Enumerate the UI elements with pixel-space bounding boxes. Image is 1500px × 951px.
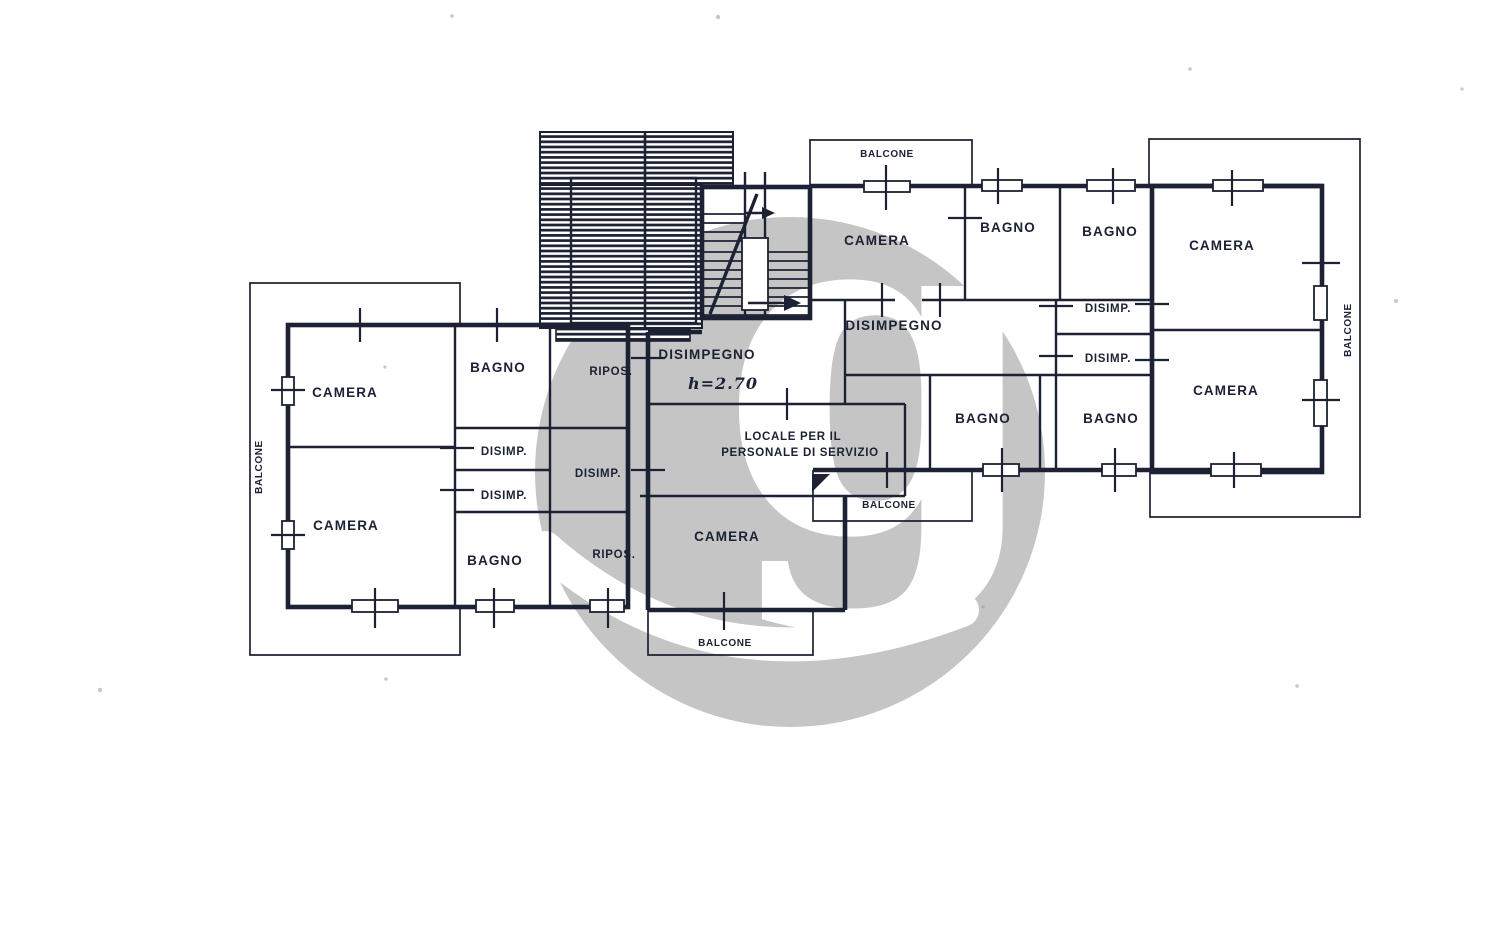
room-label-bagno-left-top: BAGNO bbox=[470, 360, 526, 375]
room-label-locale-line2: PERSONALE DI SERVIZIO bbox=[721, 447, 879, 459]
room-label-disimp-left-upper: DISIMP. bbox=[481, 446, 527, 458]
room-label-bagno-top-1: BAGNO bbox=[980, 220, 1036, 235]
room-label-bagno-left-bottom: BAGNO bbox=[467, 553, 523, 568]
room-label-camera-center-bottom: CAMERA bbox=[694, 529, 760, 544]
room-label-bagno-right-2: BAGNO bbox=[1083, 411, 1139, 426]
room-label-camera-left-top: CAMERA bbox=[312, 385, 378, 400]
room-label-camera-right-top: CAMERA bbox=[1189, 238, 1255, 253]
room-label-ripos-bottom: RIPOS. bbox=[592, 549, 635, 561]
label-balcone-center: BALCONE bbox=[862, 500, 916, 511]
room-label-disimpegno-center: DISIMPEGNO bbox=[658, 347, 755, 362]
stair-landing bbox=[742, 238, 768, 310]
room-label-disimp-right-upper: DISIMP. bbox=[1085, 303, 1131, 315]
label-balcone-left: BALCONE bbox=[254, 440, 265, 494]
balcony-right-rail bbox=[1149, 139, 1360, 517]
room-label-camera-left-bottom: CAMERA bbox=[313, 518, 379, 533]
label-balcone-bottom: BALCONE bbox=[698, 638, 752, 649]
room-label-disimp-left-lower: DISIMP. bbox=[481, 490, 527, 502]
label-balcone-top: BALCONE bbox=[860, 149, 914, 160]
room-label-disimp-right-lower: DISIMP. bbox=[1085, 353, 1131, 365]
room-label-camera-right-bottom: CAMERA bbox=[1193, 383, 1259, 398]
room-label-ripos-top: RIPOS. bbox=[589, 366, 632, 378]
room-label-disimpegno-right: DISIMPEGNO bbox=[845, 318, 942, 333]
label-balcone-right: BALCONE bbox=[1343, 303, 1354, 357]
room-label-bagno-top-2: BAGNO bbox=[1082, 224, 1138, 239]
ceiling-height-note: h=2.70 bbox=[688, 374, 758, 393]
room-label-bagno-right-1: BAGNO bbox=[955, 411, 1011, 426]
scanned-floor-plan-page: g bbox=[0, 0, 1500, 951]
room-label-locale-line1: LOCALE PER IL bbox=[745, 431, 842, 443]
room-label-disimp-middle: DISIMP. bbox=[575, 468, 621, 480]
floor-plan-canvas: g bbox=[0, 0, 1500, 951]
room-label-camera-center-top: CAMERA bbox=[844, 233, 910, 248]
